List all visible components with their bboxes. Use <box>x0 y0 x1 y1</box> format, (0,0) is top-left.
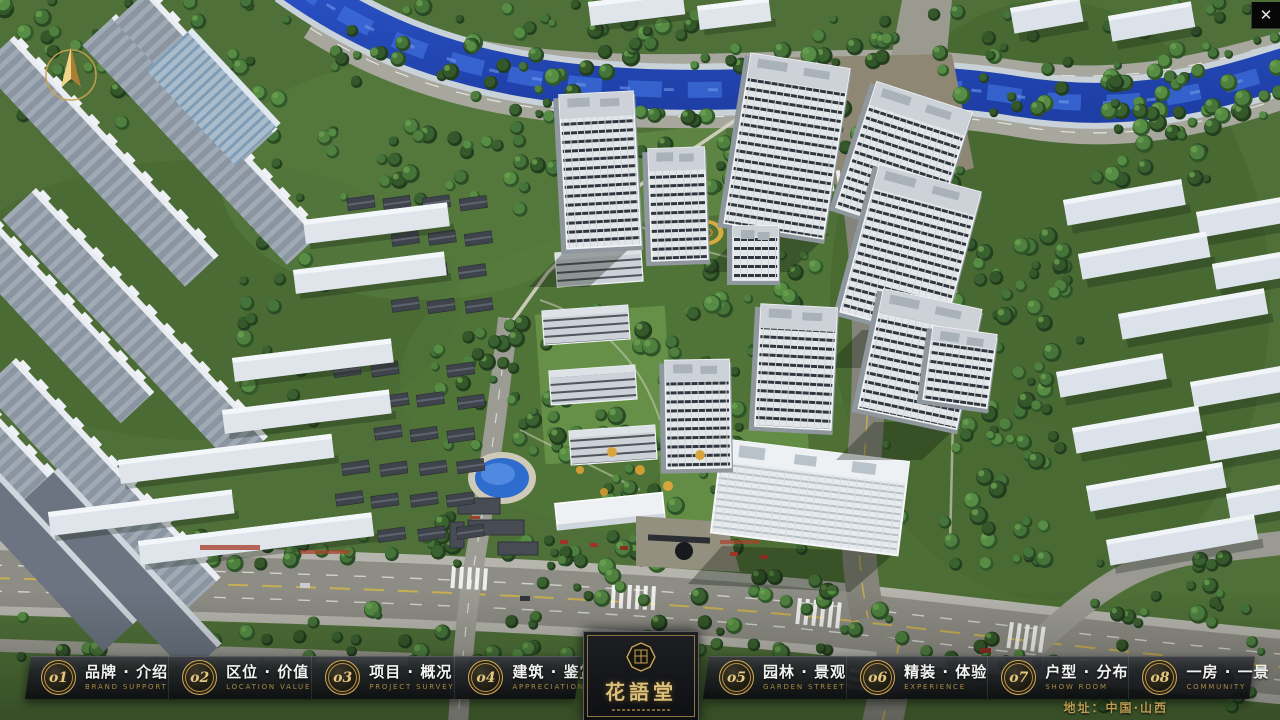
aerial-master-plan <box>0 0 1280 720</box>
nav-badge-6: o6 <box>860 660 895 695</box>
nav-item-views[interactable]: o8 一房 · 一景 COMMUNITY <box>1128 656 1269 699</box>
nav-item-project[interactable]: o3 项目 · 概况 PROJECT SURVEY <box>311 656 454 699</box>
nav-label-en: BRAND SUPPORT <box>85 684 168 691</box>
nav-badge-5: o5 <box>719 660 754 695</box>
seal-emblem-icon <box>626 642 656 672</box>
nav-badge-2: o2 <box>182 660 217 695</box>
nav-item-garden[interactable]: o5 园林 · 景观 GARDEN STREET <box>706 656 846 699</box>
address-text: 地址：中国·山西 <box>1063 699 1168 716</box>
nav-label-zh: 一房 · 一景 <box>1186 665 1269 680</box>
nav-badge-3: o3 <box>325 660 360 695</box>
nav-badge-8: o8 <box>1142 660 1177 695</box>
nav-badge-4: o4 <box>468 660 503 695</box>
nav-badge-7: o7 <box>1001 660 1036 695</box>
nav-item-floorplan[interactable]: o7 户型 · 分布 SHOW ROOM <box>987 656 1128 699</box>
logo-frame: 花語堂 <box>587 635 695 717</box>
logo-subtitle-line <box>612 709 670 711</box>
nav-label-en: LOCATION VALUE <box>226 684 311 691</box>
close-button[interactable]: ✕ <box>1251 2 1280 29</box>
nav-label-en: GARDEN STREET <box>763 684 846 691</box>
nav-label-zh: 区位 · 价值 <box>226 665 311 680</box>
nav-label-zh: 品牌 · 介绍 <box>85 665 168 680</box>
nav-label-zh: 项目 · 概况 <box>369 665 454 680</box>
nav-item-brand[interactable]: o1 品牌 · 介绍 BRAND SUPPORT <box>28 656 168 699</box>
nav-label-en: SHOW ROOM <box>1045 684 1128 691</box>
nav-item-location[interactable]: o2 区位 · 价值 LOCATION VALUE <box>168 656 311 699</box>
project-logo-panel[interactable]: 花語堂 <box>583 631 699 720</box>
nav-item-architecture[interactable]: o4 建筑 · 鉴赏 APPRECIATION <box>454 656 595 699</box>
navbar-left: o1 品牌 · 介绍 BRAND SUPPORT o2 区位 · 价值 LOCA… <box>28 656 578 699</box>
nav-label-en: PROJECT SURVEY <box>369 684 454 691</box>
nav-label-en: EXPERIENCE <box>904 684 987 691</box>
nav-label-zh: 精装 · 体验 <box>904 665 987 680</box>
nav-label-zh: 户型 · 分布 <box>1045 665 1128 680</box>
nav-label-en: COMMUNITY <box>1186 684 1269 691</box>
nav-label-zh: 园林 · 景观 <box>763 665 846 680</box>
navbar-right: o5 园林 · 景观 GARDEN STREET o6 精装 · 体验 EXPE… <box>706 656 1252 699</box>
nav-badge-1: o1 <box>41 660 76 695</box>
project-title: 花語堂 <box>605 676 677 705</box>
sales-app-window: ✕ o1 品牌 · 介绍 BRAND SUPPORT o2 区位 · 价值 LO… <box>0 0 1280 720</box>
nav-item-interior[interactable]: o6 精装 · 体验 EXPERIENCE <box>846 656 987 699</box>
